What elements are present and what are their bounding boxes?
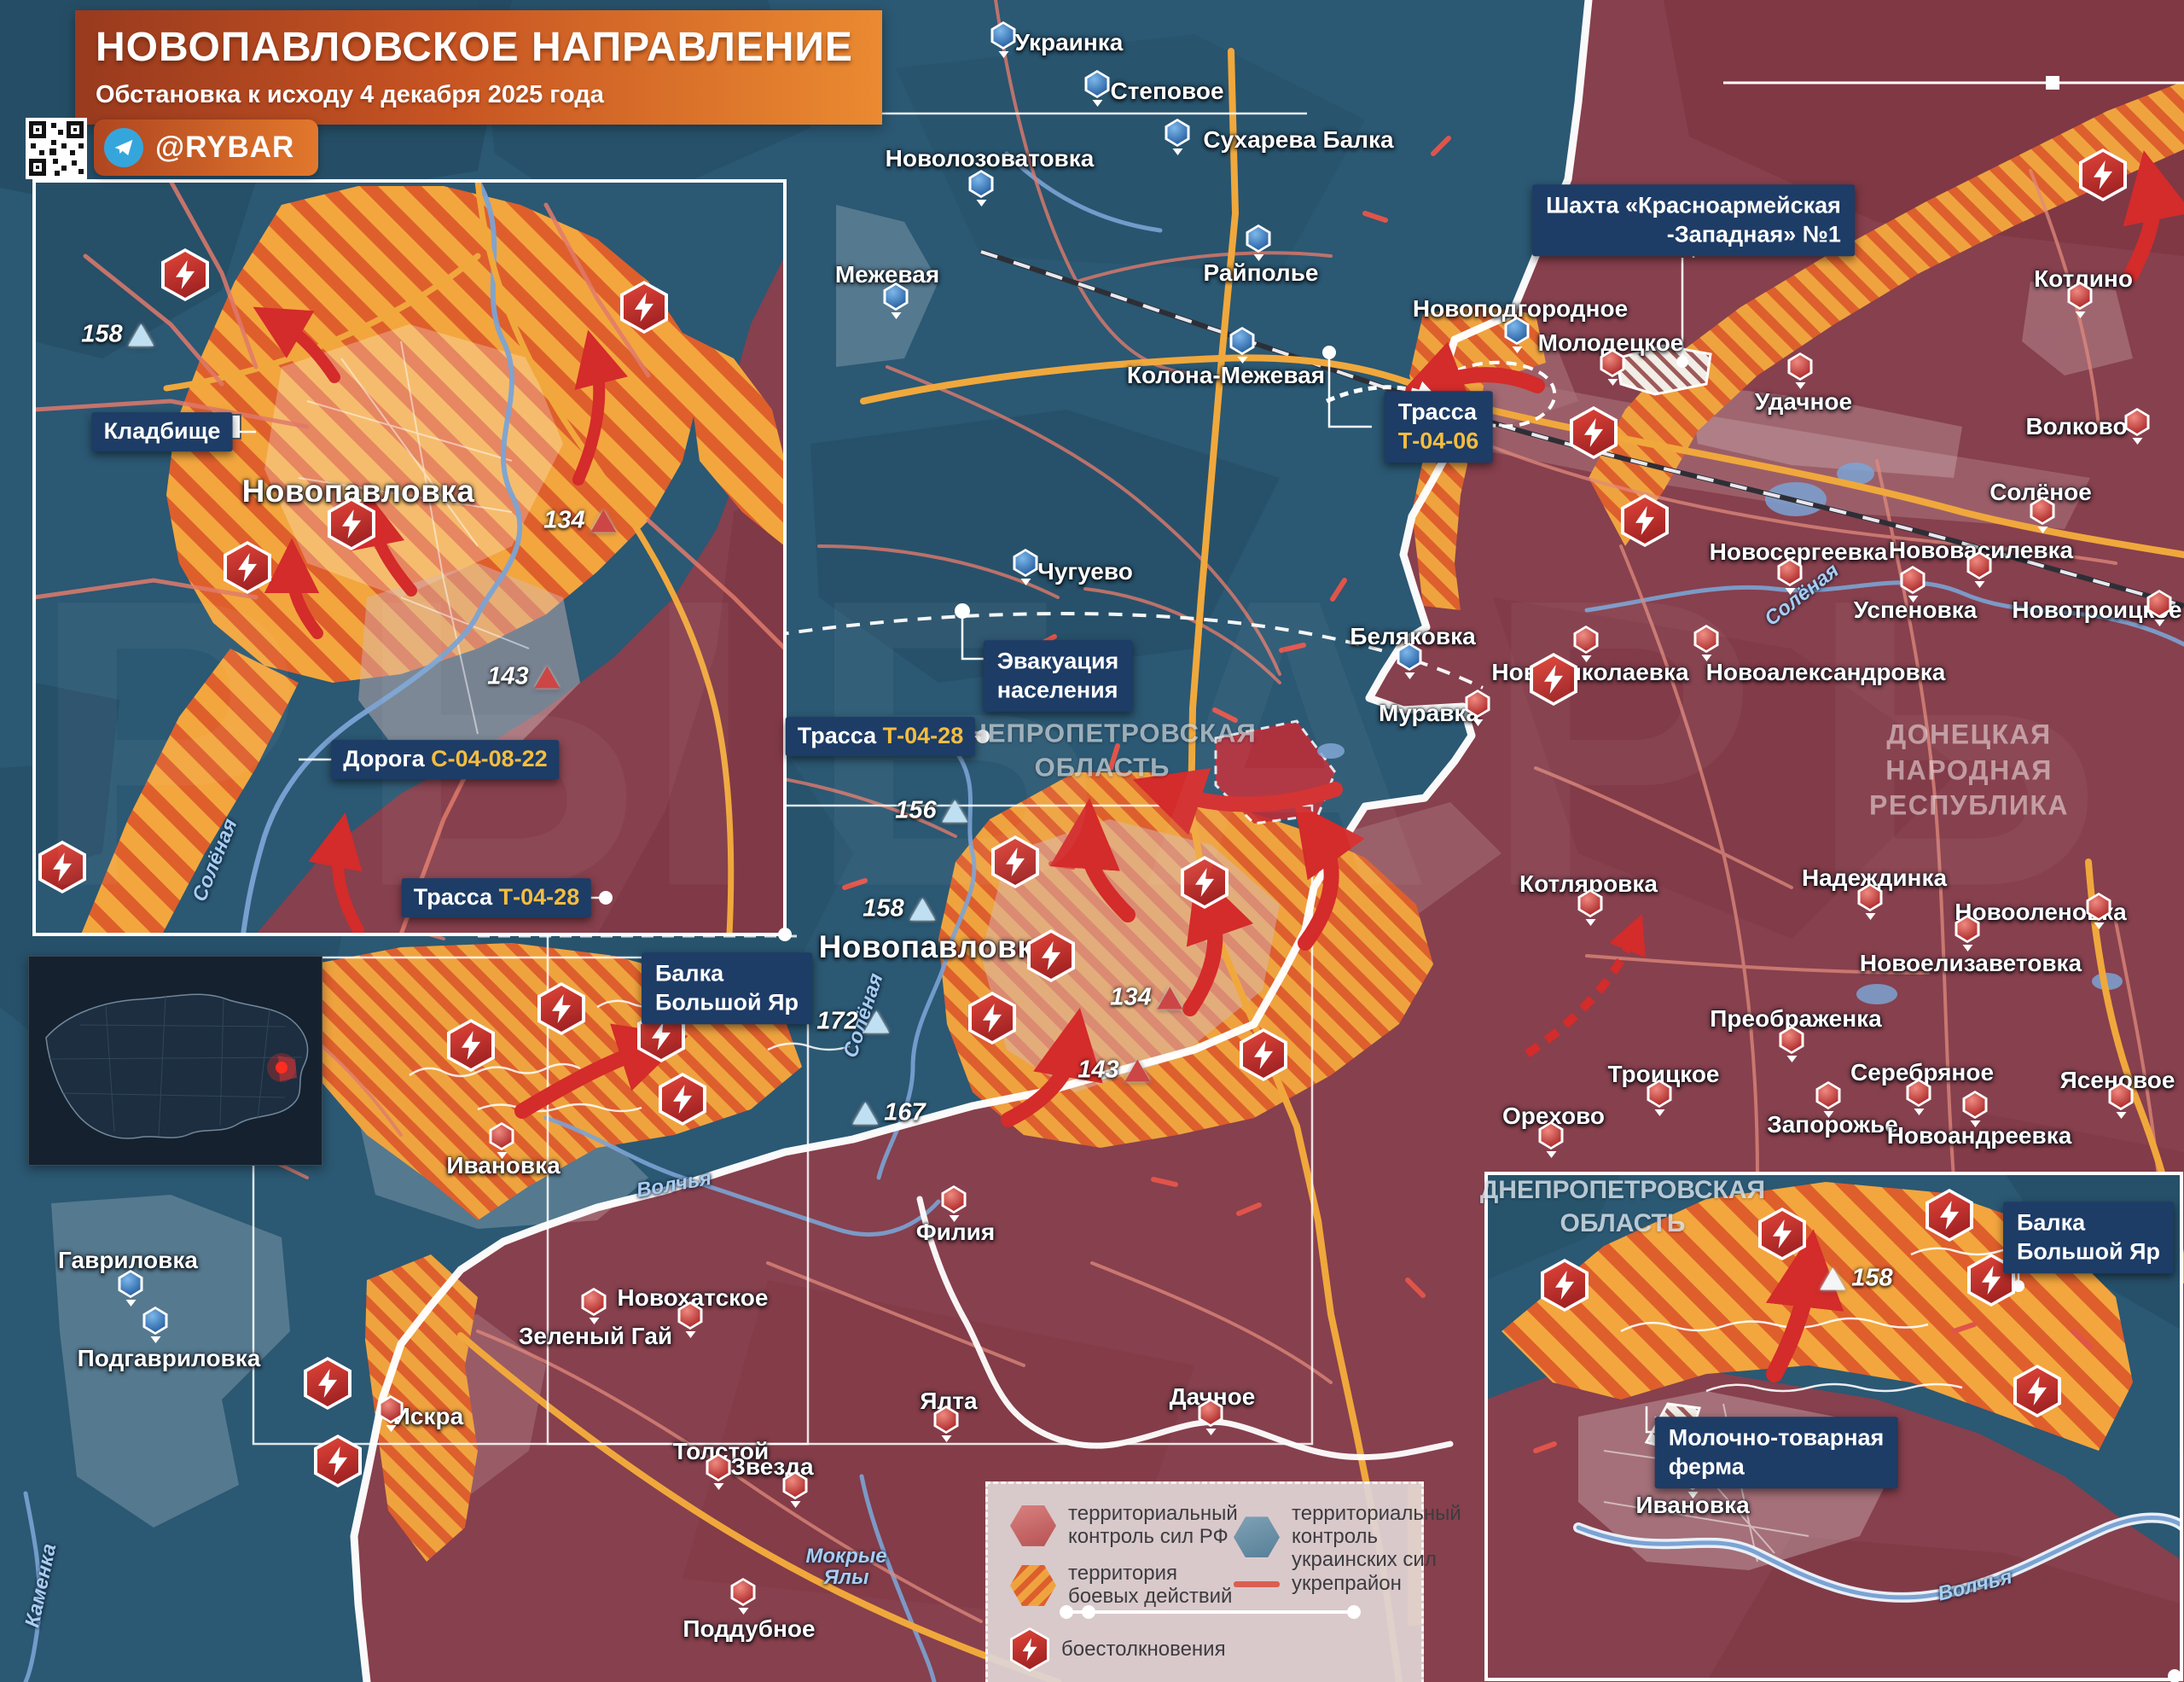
settlement-pin[interactable]: [1230, 327, 1255, 364]
settlement-pin[interactable]: [884, 282, 909, 319]
height-value: 134: [543, 507, 584, 535]
legend-label: территориальный контроль сил РФ: [1068, 1503, 1252, 1549]
height-triangle-icon: [1158, 987, 1183, 1009]
settlement-pin[interactable]: [1907, 1079, 1931, 1115]
fortified-line-icon: [1234, 1581, 1280, 1587]
clash-hex-icon: [991, 835, 1039, 888]
road-number: Т-04-28: [883, 723, 964, 748]
height-triangle-icon: [591, 509, 617, 532]
settlement-pin[interactable]: [1085, 70, 1110, 107]
lightning-icon: [1042, 941, 1060, 970]
legend-label: боестолкновения: [1061, 1638, 1226, 1662]
river-label: Мокрые Ялы: [791, 1545, 902, 1588]
height-triangle-icon: [943, 800, 968, 822]
callout-evacuation: Эвакуация населения: [984, 640, 1133, 712]
height-marker: 156: [895, 797, 967, 825]
clash-hex-icon: [1240, 1028, 1287, 1081]
clash-badge[interactable]: [1621, 494, 1669, 547]
clash-badge[interactable]: [1240, 1028, 1287, 1081]
clash-badge[interactable]: [537, 982, 585, 1035]
qr-code: [26, 118, 87, 179]
title-banner: НОВОПАВЛОВСКОЕ НАПРАВЛЕНИЕ Обстановка к …: [75, 10, 882, 125]
callout-text: Шахта «Красноармейская: [1546, 192, 1841, 218]
height-triangle-icon: [864, 1010, 890, 1033]
lightning-icon: [2028, 1376, 2047, 1406]
lightning-icon: [983, 1004, 1002, 1033]
map-legend: территориальный контроль сил РФ территор…: [985, 1481, 1424, 1682]
clash-badge[interactable]: [161, 248, 209, 301]
lightning-icon: [1544, 665, 1563, 694]
clash-badge[interactable]: [1027, 929, 1075, 982]
clash-badge[interactable]: [304, 1357, 351, 1410]
settlement-pin[interactable]: [706, 1453, 731, 1490]
clash-hex-icon: [659, 1073, 706, 1126]
region-line: ДНЕПРОПЕТРОВСКАЯ: [948, 717, 1256, 751]
settlement-pin[interactable]: [1397, 643, 1422, 679]
clash-hex-icon: [968, 992, 1016, 1045]
clash-badge[interactable]: [1530, 653, 1577, 706]
clash-badge[interactable]: [2079, 148, 2127, 201]
lightning-icon: [552, 994, 571, 1023]
settlement-label: Новониколаевка: [1491, 659, 1688, 686]
settlement-pin[interactable]: [1780, 1026, 1804, 1062]
clash-hex-icon: [38, 841, 86, 893]
settlement-pin[interactable]: [582, 1288, 607, 1324]
region-line: НАРОДНАЯ: [1869, 753, 2069, 789]
combat-zone-icon: [1010, 1565, 1056, 1606]
clash-badge[interactable]: [1926, 1189, 1973, 1242]
channel-handle: @RYBAR: [155, 131, 294, 165]
clash-badge[interactable]: [314, 1435, 362, 1487]
callout-text: Молочно-товарная: [1669, 1424, 1885, 1450]
region-label-dnr: ДОНЕЦКАЯ НАРОДНАЯ РЕСПУБЛИКА: [1869, 718, 2069, 824]
settlement-pin[interactable]: [1647, 1080, 1672, 1116]
settlement-label: Новопавловка: [819, 929, 1052, 965]
settlement-label: Зеленый Гай: [519, 1323, 672, 1350]
height-triangle-icon: [535, 666, 561, 688]
settlement-pin[interactable]: [1539, 1121, 1564, 1158]
scale-bar: [1063, 1610, 1357, 1614]
callout-road-c040822: Дорога С-04-08-22: [331, 740, 559, 779]
clash-hex-icon: [1570, 406, 1618, 459]
legend-label: укрепрайон: [1292, 1573, 1402, 1596]
legend-item-clashes: боестолкновения: [1010, 1627, 1226, 1672]
lightning-icon: [1982, 1266, 2001, 1295]
clash-hex-icon: [1541, 1259, 1589, 1312]
clash-hex-icon: [2079, 148, 2127, 201]
settlement-pin[interactable]: [1466, 690, 1490, 726]
clash-badge[interactable]: [328, 498, 375, 550]
height-value: 143: [1077, 1056, 1118, 1085]
callout-cemetery: Кладбище: [92, 412, 233, 451]
region-line: ОБЛАСТЬ: [948, 751, 1256, 785]
road-number: Т-04-06: [1398, 428, 1479, 453]
lightning-icon: [673, 1085, 692, 1114]
page-title: НОВОПАВЛОВСКОЕ НАПРАВЛЕНИЕ: [96, 24, 853, 71]
settlement-pin[interactable]: [1967, 551, 1992, 588]
callout-highway-t0406: Трасса Т-04-06: [1385, 391, 1493, 463]
callout-text: Балка: [2017, 1209, 2085, 1235]
clash-badge[interactable]: [2013, 1365, 2061, 1417]
settlement-pin[interactable]: [1014, 549, 1038, 585]
settlement-label: Муравка: [1379, 700, 1479, 727]
region-line: РЕСПУБЛИКА: [1869, 789, 2069, 824]
situation-map: РЫБАРЬ УкраинкаСтеповоеСухарева БалкаНов…: [0, 0, 2184, 1682]
clash-hex-icon: [161, 248, 209, 301]
clash-badge[interactable]: [447, 1019, 495, 1072]
telegram-chip[interactable]: @RYBAR: [94, 119, 318, 176]
minimap-canvas: [29, 957, 322, 1165]
callout-highway-t0428-inset: Трасса Т-04-28: [402, 878, 591, 917]
settlement-pin[interactable]: [678, 1301, 703, 1338]
height-triangle-icon: [1820, 1267, 1845, 1289]
lightning-icon: [53, 853, 72, 882]
callout-text: Трасса: [414, 884, 492, 910]
lightning-icon: [328, 1446, 347, 1475]
qr-pattern: [26, 118, 87, 179]
ua-territory-icon: [1234, 1516, 1280, 1557]
lightning-icon: [1773, 1219, 1792, 1248]
clash-hex-icon: [2013, 1365, 2061, 1417]
callout-text: ферма: [1669, 1453, 1745, 1479]
clash-badge[interactable]: [1541, 1259, 1589, 1312]
lightning-icon: [238, 553, 257, 582]
callout-text: -Западная» №1: [1667, 221, 1841, 247]
settlement-label: Новолозоватовка: [886, 145, 1095, 172]
height-value: 156: [895, 797, 936, 825]
road-number: Т-04-28: [499, 884, 580, 910]
settlement-pin[interactable]: [143, 1307, 168, 1343]
settlement-pin[interactable]: [934, 1406, 959, 1442]
clash-hex-icon: [537, 982, 585, 1035]
settlement-label: Новоелизаветовка: [1860, 950, 2082, 977]
lightning-icon: [176, 260, 195, 289]
lightning-icon: [652, 1021, 671, 1051]
height-marker: 172: [816, 1008, 889, 1036]
overview-minimap: [28, 956, 322, 1166]
height-marker: 134: [1110, 984, 1182, 1012]
road-number: С-04-08-22: [431, 746, 548, 771]
height-triangle-icon: [910, 898, 936, 920]
lightning-icon: [1254, 1040, 1273, 1069]
settlement-label: Удачное: [1755, 388, 1852, 416]
clash-badge[interactable]: [224, 541, 271, 594]
settlement-pin[interactable]: [1788, 352, 1813, 389]
settlement-pin[interactable]: [991, 21, 1016, 58]
region-label-dnipropetrovsk-inset: ДНЕПРОПЕТРОВСКАЯ ОБЛАСТЬ: [1480, 1173, 1765, 1240]
clash-hex-icon: [1027, 929, 1075, 982]
page-subtitle: Обстановка к исходу 4 декабря 2025 года: [96, 81, 853, 109]
clash-hex-icon: [224, 541, 271, 594]
clash-hex-icon: [328, 498, 375, 550]
clash-hex-icon: [1758, 1208, 1806, 1260]
lightning-icon: [1195, 868, 1214, 897]
clash-hex-icon: [447, 1019, 495, 1072]
height-marker: 158: [81, 321, 154, 349]
settlement-label: Волково: [2025, 413, 2127, 440]
settlement-pin[interactable]: [1955, 915, 1980, 952]
clash-hex-icon: [1621, 494, 1669, 547]
legend-item-combat-zone: территория боевых действий: [1010, 1563, 1252, 1609]
settlement-label: Подгавриловка: [78, 1345, 261, 1372]
height-marker: 167: [852, 1099, 925, 1127]
height-value: 158: [1851, 1265, 1892, 1293]
clashes-icon: [1010, 1627, 1049, 1672]
settlement-pin[interactable]: [1578, 889, 1603, 926]
height-marker: 134: [543, 507, 616, 535]
callout-text: Кладбище: [104, 418, 221, 444]
settlement-pin[interactable]: [1858, 883, 1883, 920]
settlement-pin[interactable]: [2068, 282, 2093, 318]
height-marker: 143: [1077, 1056, 1150, 1085]
height-triangle-icon: [129, 323, 154, 346]
legend-item-fortified: укрепрайон: [1234, 1573, 1402, 1596]
settlement-label: Чугуево: [1037, 558, 1133, 585]
lightning-icon: [342, 509, 361, 538]
settlement-pin[interactable]: [1199, 1399, 1223, 1435]
settlement-label: Украинка: [1015, 29, 1124, 56]
height-triangle-icon: [852, 1102, 878, 1124]
clash-hex-icon: [1926, 1189, 1973, 1242]
settlement-pin[interactable]: [2147, 590, 2172, 626]
clash-badge[interactable]: [1570, 406, 1618, 459]
settlement-pin[interactable]: [783, 1471, 808, 1508]
settlement-pin[interactable]: [942, 1185, 967, 1222]
settlement-pin[interactable]: [379, 1395, 404, 1432]
height-marker: 143: [487, 663, 560, 691]
height-value: 167: [884, 1099, 925, 1127]
clash-hex-icon: [1181, 856, 1228, 909]
settlement-pin[interactable]: [1165, 119, 1190, 155]
clash-badge[interactable]: [659, 1073, 706, 1126]
height-value: 143: [487, 663, 528, 691]
clash-badge[interactable]: [38, 841, 86, 893]
settlement-pin[interactable]: [1246, 224, 1271, 261]
callout-text: Эвакуация: [997, 648, 1119, 673]
lightning-icon: [2094, 160, 2112, 189]
river-label: Волчья: [635, 1167, 713, 1202]
callout-text: населения: [997, 677, 1118, 702]
clash-badge[interactable]: [1758, 1208, 1806, 1260]
clash-badge[interactable]: [991, 835, 1039, 888]
settlement-pin[interactable]: [1505, 317, 1530, 353]
settlement-pin[interactable]: [1600, 349, 1625, 386]
callout-mine: Шахта «Красноармейская -Западная» №1: [1532, 184, 1855, 256]
clash-badge[interactable]: [968, 992, 1016, 1045]
height-value: 158: [863, 895, 903, 923]
callout-text: Трасса: [1398, 399, 1477, 424]
height-value: 158: [81, 321, 122, 349]
clash-hex-icon: [620, 281, 668, 334]
river-label: Волчья: [1936, 1566, 2014, 1605]
height-triangle-icon: [1125, 1059, 1151, 1081]
callout-highway-t0428: Трасса Т-04-28: [786, 717, 975, 756]
settlement-pin[interactable]: [731, 1578, 756, 1615]
settlement-label: Искра: [393, 1403, 463, 1430]
telegram-icon: [104, 128, 143, 167]
settlement-label: Колона-Межевая: [1127, 362, 1325, 389]
region-line: ОБЛАСТЬ: [1480, 1207, 1765, 1240]
lightning-icon: [1555, 1271, 1574, 1300]
settlement-pin[interactable]: [969, 170, 994, 207]
lightning-icon: [1940, 1201, 1959, 1230]
settlement-pin[interactable]: [1694, 625, 1719, 661]
clash-hex-icon: [314, 1435, 362, 1487]
region-label-dnipropetrovsk: ДНЕПРОПЕТРОВСКАЯ ОБЛАСТЬ: [948, 717, 1256, 786]
callout-balka-inset: Балка Большой Яр: [2003, 1202, 2174, 1273]
settlement-label: Поддубное: [682, 1615, 815, 1643]
river-label: Каменка: [21, 1542, 60, 1630]
lightning-icon: [318, 1369, 337, 1398]
callout-text: Дорога: [343, 746, 424, 771]
settlement-pin[interactable]: [1901, 566, 1926, 602]
clash-badge[interactable]: [1181, 856, 1228, 909]
settlement-pin[interactable]: [119, 1270, 143, 1307]
settlement-pin[interactable]: [2030, 497, 2055, 533]
height-marker: 158: [1820, 1265, 1892, 1293]
lightning-icon: [1635, 506, 1654, 535]
callout-text: Большой Яр: [2017, 1238, 2160, 1264]
clash-hex-icon: [1530, 653, 1577, 706]
ru-territory-icon: [1010, 1505, 1056, 1546]
settlement-label: Сухарева Балка: [1203, 126, 1393, 154]
lightning-icon: [635, 293, 653, 322]
callout-balka: Балка Большой Яр: [642, 952, 812, 1024]
legend-label: территориальный контроль украинских сил: [1292, 1503, 1461, 1572]
settlement-label: Райполье: [1204, 259, 1319, 287]
callout-text: Балка: [655, 960, 723, 986]
height-value: 172: [816, 1008, 857, 1036]
lightning-icon: [462, 1031, 480, 1060]
clash-hex-icon: [304, 1357, 351, 1410]
settlement-pin[interactable]: [490, 1122, 514, 1159]
legend-item-ru-control: территориальный контроль сил РФ: [1010, 1503, 1252, 1549]
clash-badge[interactable]: [620, 281, 668, 334]
callout-text: Трасса: [798, 723, 876, 748]
region-line: ДОНЕЦКАЯ: [1869, 718, 2069, 754]
settlement-pin[interactable]: [2109, 1082, 2134, 1119]
settlement-pin[interactable]: [1816, 1081, 1841, 1118]
river-label: Солёная: [189, 816, 241, 905]
settlement-label: Филия: [916, 1219, 995, 1246]
legend-item-ua-control: территориальный контроль украинских сил: [1234, 1503, 1461, 1572]
settlement-pin[interactable]: [1778, 558, 1803, 595]
settlement-pin[interactable]: [1963, 1091, 1988, 1127]
height-value: 134: [1110, 984, 1151, 1012]
height-marker: 158: [863, 895, 935, 923]
callout-farm: Молочно-товарная ферма: [1655, 1417, 1898, 1488]
legend-label: территория боевых действий: [1068, 1563, 1252, 1609]
settlement-pin[interactable]: [2087, 893, 2111, 929]
lightning-icon: [1006, 847, 1025, 876]
settlement-label: Степовое: [1110, 78, 1223, 105]
settlement-pin[interactable]: [2125, 408, 2150, 445]
callout-text: Большой Яр: [655, 989, 799, 1015]
lightning-icon: [1584, 418, 1603, 447]
region-line: ДНЕПРОПЕТРОВСКАЯ: [1480, 1173, 1765, 1207]
settlement-label: Новоалександровка: [1706, 659, 1946, 686]
